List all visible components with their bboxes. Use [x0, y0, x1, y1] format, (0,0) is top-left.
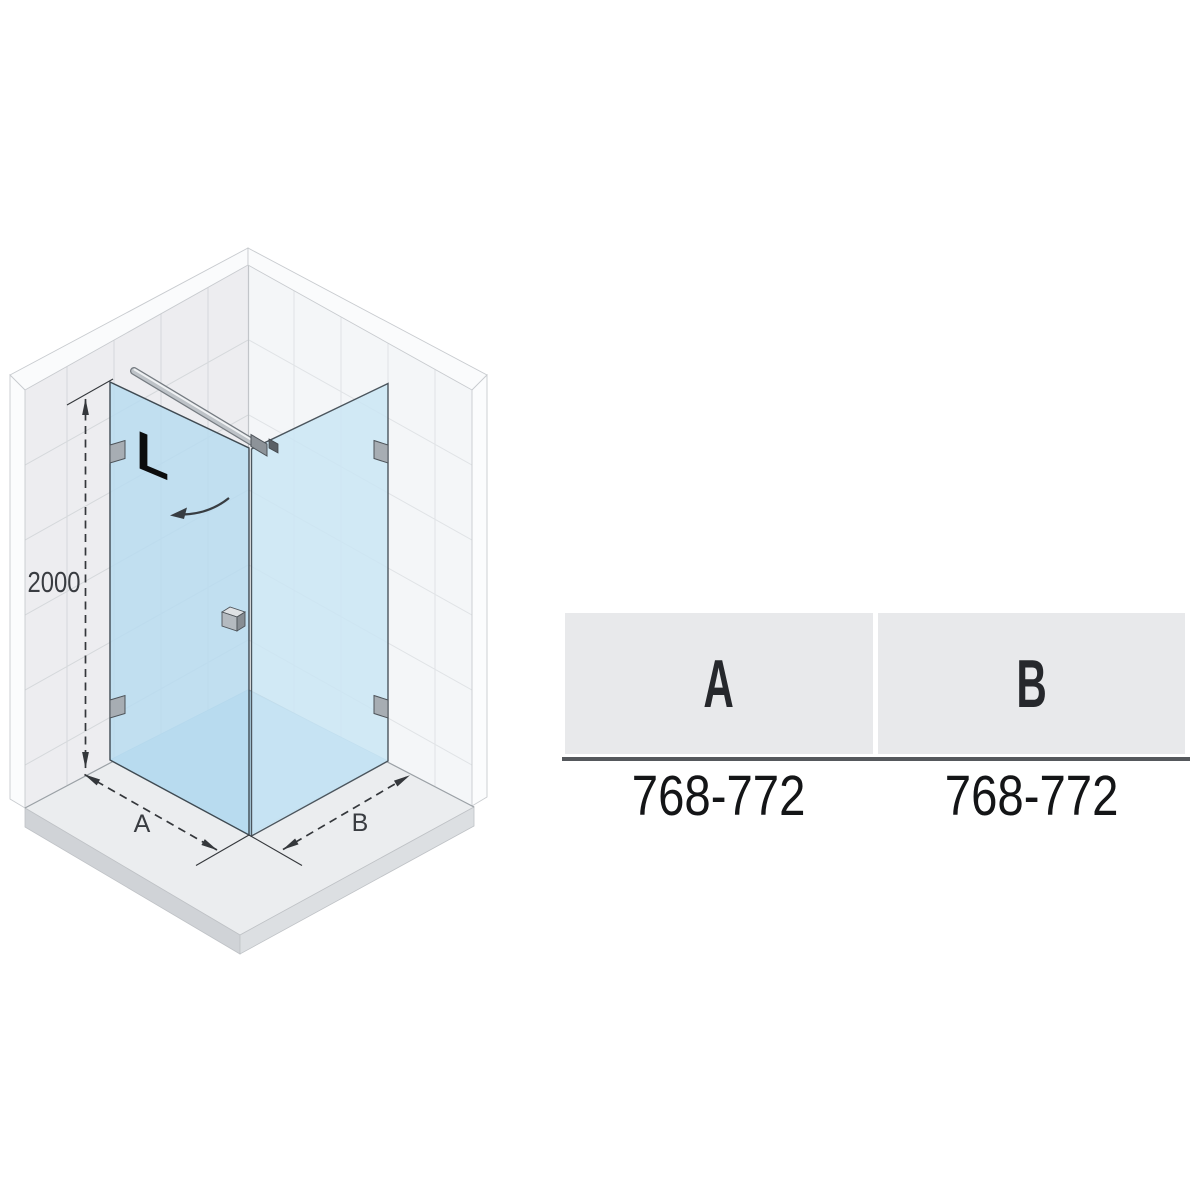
column-a-value: 768-772 — [632, 768, 806, 825]
door-knob — [222, 607, 245, 631]
column-a-header-cell: A — [565, 613, 873, 754]
dimension-a-label: A — [134, 810, 151, 838]
table-rule — [562, 757, 1190, 761]
column-a-header: A — [704, 650, 734, 718]
column-a-value-cell: 768-772 — [565, 766, 873, 826]
shower-enclosure-diagram: L 2000 A B — [0, 0, 520, 1000]
column-b-header-cell: B — [878, 613, 1185, 754]
page: L 2000 A B A B 768-772 — [0, 0, 1200, 1200]
column-b-value-cell: 768-772 — [878, 766, 1185, 826]
panel-bracket-bottom-icon — [374, 696, 388, 719]
side-panel-glass — [252, 384, 389, 837]
panel-bracket-top-icon — [374, 441, 388, 464]
dimension-b-label: B — [352, 809, 369, 837]
door-hinge-top-icon — [110, 441, 125, 464]
column-b-header: B — [1016, 650, 1046, 718]
height-dimension-label: 2000 — [28, 567, 81, 599]
column-b-value: 768-772 — [945, 768, 1119, 825]
right-wall-front-strip — [472, 375, 487, 806]
door-hinge-bottom-icon — [110, 696, 125, 719]
dimensions-table: A B 768-772 768-772 — [565, 613, 1190, 823]
left-wall-front-strip — [10, 375, 25, 808]
